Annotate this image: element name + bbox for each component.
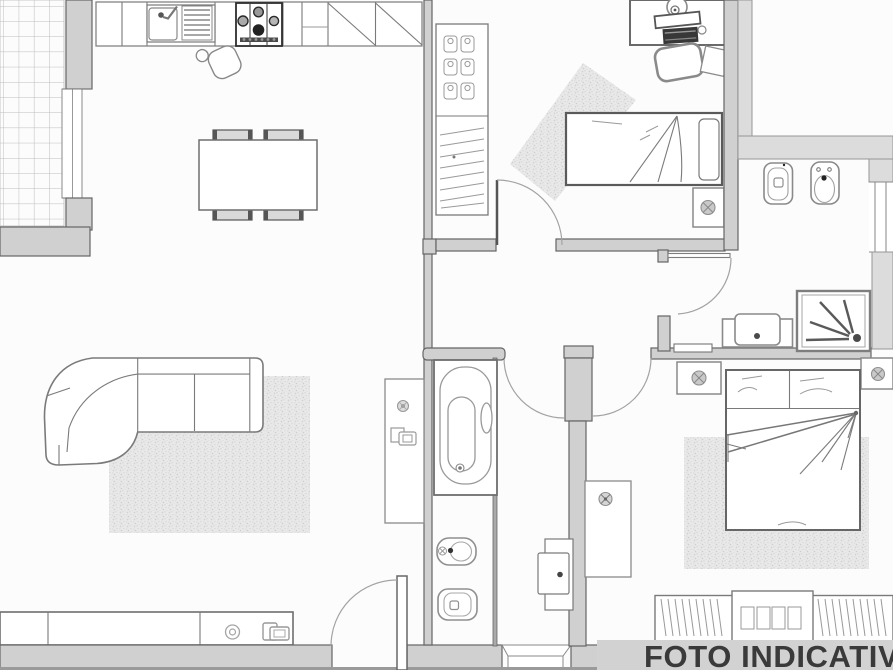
svg-text:FOTO INDICATIV: FOTO INDICATIV <box>644 639 893 670</box>
